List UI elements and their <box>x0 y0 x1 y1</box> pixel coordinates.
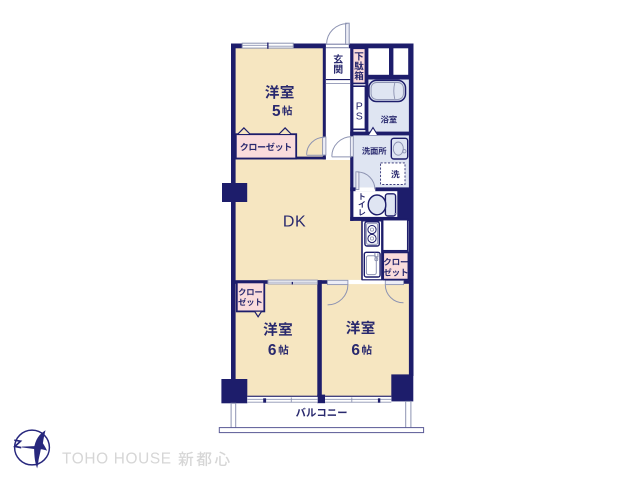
svg-text:6: 6 <box>351 342 360 359</box>
svg-text:5: 5 <box>272 103 281 120</box>
svg-text:TOHO HOUSE: TOHO HOUSE <box>62 451 172 468</box>
svg-text:DK: DK <box>283 213 306 230</box>
svg-text:6: 6 <box>268 342 277 359</box>
svg-text:S: S <box>356 111 363 123</box>
